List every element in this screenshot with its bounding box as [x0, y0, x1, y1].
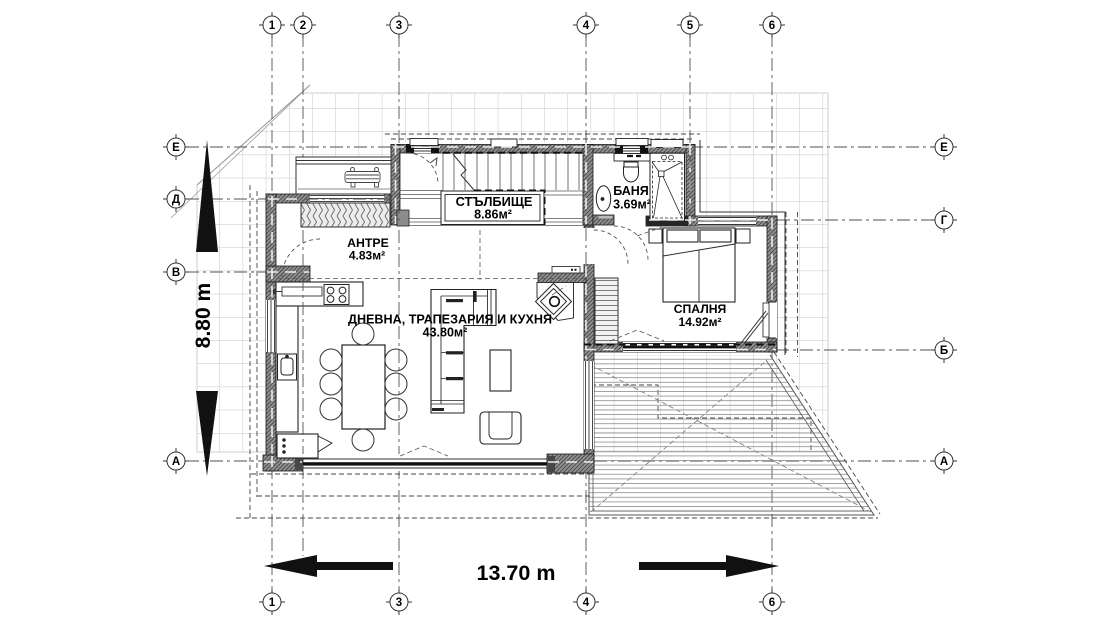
svg-text:2: 2 — [300, 20, 306, 32]
svg-text:3: 3 — [396, 597, 402, 609]
svg-text:А: А — [172, 456, 180, 468]
svg-text:Е: Е — [172, 142, 180, 154]
svg-text:Б: Б — [940, 345, 948, 357]
svg-text:3: 3 — [396, 20, 402, 32]
svg-text:БАНЯ: БАНЯ — [613, 184, 649, 198]
svg-text:43.80м²: 43.80м² — [423, 326, 468, 340]
svg-text:14.92м²: 14.92м² — [679, 315, 722, 329]
svg-text:8.80 m: 8.80 m — [192, 283, 215, 348]
svg-text:4: 4 — [583, 20, 590, 32]
svg-text:4.83м²: 4.83м² — [349, 249, 385, 263]
svg-text:4: 4 — [583, 597, 590, 609]
svg-text:Г: Г — [941, 215, 948, 227]
svg-text:ДНЕВНА, ТРАПЕЗАРИЯ И КУХНЯ: ДНЕВНА, ТРАПЕЗАРИЯ И КУХНЯ — [348, 313, 552, 327]
svg-text:В: В — [172, 267, 180, 279]
svg-text:6: 6 — [769, 20, 775, 32]
svg-text:13.70 m: 13.70 m — [477, 561, 556, 585]
svg-text:1: 1 — [269, 597, 276, 609]
svg-text:СПАЛНЯ: СПАЛНЯ — [674, 302, 727, 316]
svg-text:Д: Д — [172, 194, 180, 206]
svg-text:3.69м²: 3.69м² — [613, 198, 651, 212]
svg-text:А: А — [940, 456, 948, 468]
svg-text:8.86м²: 8.86м² — [474, 208, 512, 222]
svg-text:Е: Е — [940, 142, 948, 154]
svg-text:6: 6 — [769, 597, 775, 609]
svg-text:1: 1 — [269, 20, 276, 32]
svg-text:5: 5 — [687, 20, 694, 32]
